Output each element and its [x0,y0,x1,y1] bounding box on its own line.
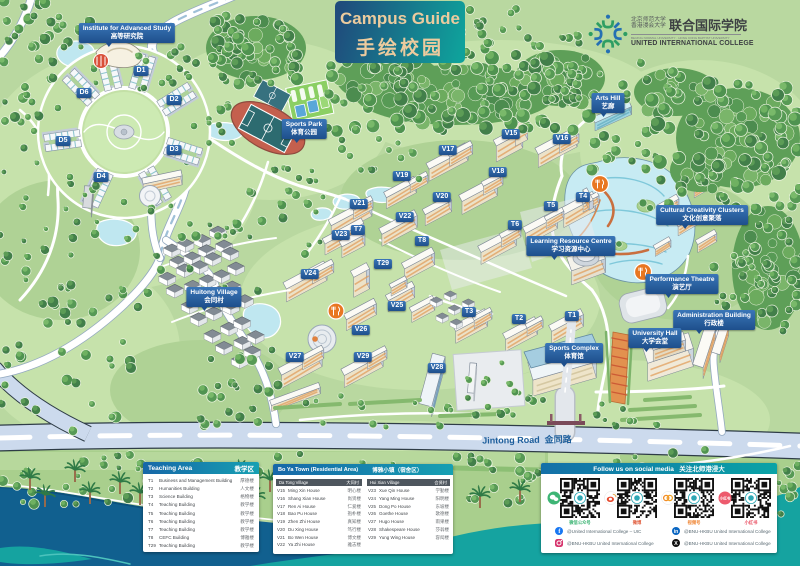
svg-text:视频号: 视频号 [688,519,702,526]
svg-text:小红书: 小红书 [719,495,731,500]
svg-text:@BNU-HKBU United International: @BNU-HKBU United International College [684,529,771,534]
svg-text:小红书: 小红书 [744,519,759,526]
svg-text:in: in [674,528,678,534]
svg-text:X: X [674,541,678,547]
svg-text:@United International College: @United International College – UIC [567,529,642,534]
svg-text:微信公众号: 微信公众号 [568,519,591,526]
svg-text:Jintong Road 金同路: Jintong Road 金同路 [482,433,573,445]
svg-text:微博: 微博 [632,519,642,526]
svg-text:@BNU-HKBU United International: @BNU-HKBU United International College [684,541,771,546]
svg-text:@BNU-HKBU United International: @BNU-HKBU United International College [567,541,654,546]
